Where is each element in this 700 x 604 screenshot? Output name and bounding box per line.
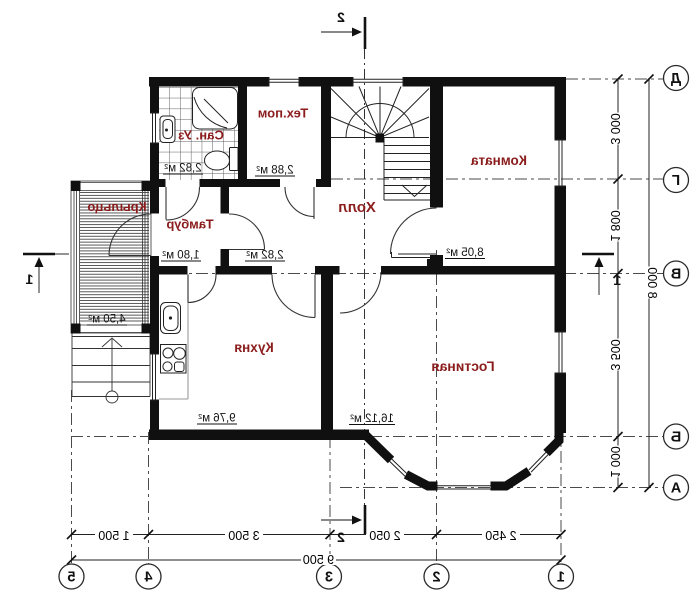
- svg-text:2,82 м²: 2,82 м²: [246, 250, 283, 262]
- svg-text:2: 2: [337, 529, 345, 545]
- svg-text:Гостиная: Гостиная: [431, 358, 494, 374]
- svg-text:9,76 м²: 9,76 м²: [198, 413, 235, 425]
- svg-text:Тамбур: Тамбур: [166, 217, 213, 232]
- svg-text:1,80 м²: 1,80 м²: [162, 250, 199, 262]
- svg-text:2 450: 2 450: [485, 529, 516, 543]
- svg-text:2: 2: [432, 570, 440, 586]
- svg-text:1: 1: [557, 570, 565, 586]
- svg-text:Тех.пом: Тех.пом: [258, 106, 308, 121]
- svg-text:3 000: 3 000: [608, 113, 622, 144]
- svg-text:9 500: 9 500: [303, 553, 334, 567]
- svg-text:Комната: Комната: [470, 153, 527, 168]
- svg-text:16,12 м²: 16,12 м²: [350, 413, 394, 425]
- svg-text:Холл: Холл: [338, 199, 376, 216]
- svg-text:В: В: [671, 267, 681, 283]
- svg-text:8,05 м²: 8,05 м²: [446, 247, 483, 259]
- svg-text:4: 4: [144, 570, 152, 586]
- svg-text:3 500: 3 500: [228, 529, 259, 543]
- svg-text:А: А: [670, 481, 681, 497]
- svg-text:1 800: 1 800: [608, 210, 622, 241]
- svg-text:1: 1: [25, 271, 33, 287]
- svg-text:2: 2: [337, 9, 345, 25]
- svg-text:Крыльцо: Крыльцо: [87, 199, 146, 214]
- svg-text:Д: Д: [670, 71, 681, 87]
- svg-text:1: 1: [613, 272, 621, 288]
- svg-text:Кухня: Кухня: [234, 340, 273, 355]
- svg-text:1 000: 1 000: [608, 446, 622, 477]
- svg-text:Сан. Уз: Сан. Уз: [178, 128, 224, 143]
- svg-text:2,88 м²: 2,88 м²: [256, 165, 293, 177]
- svg-text:Г: Г: [672, 173, 680, 189]
- svg-text:1 500: 1 500: [98, 529, 129, 543]
- svg-text:5: 5: [67, 570, 75, 586]
- svg-text:4,50 м²: 4,50 м²: [88, 314, 125, 326]
- svg-text:Б: Б: [671, 430, 681, 446]
- svg-text:2 050: 2 050: [369, 529, 400, 543]
- svg-text:8 000: 8 000: [645, 267, 659, 298]
- svg-text:2,82 м²: 2,82 м²: [164, 163, 201, 175]
- svg-text:3: 3: [325, 570, 333, 586]
- svg-text:3 500: 3 500: [608, 339, 622, 370]
